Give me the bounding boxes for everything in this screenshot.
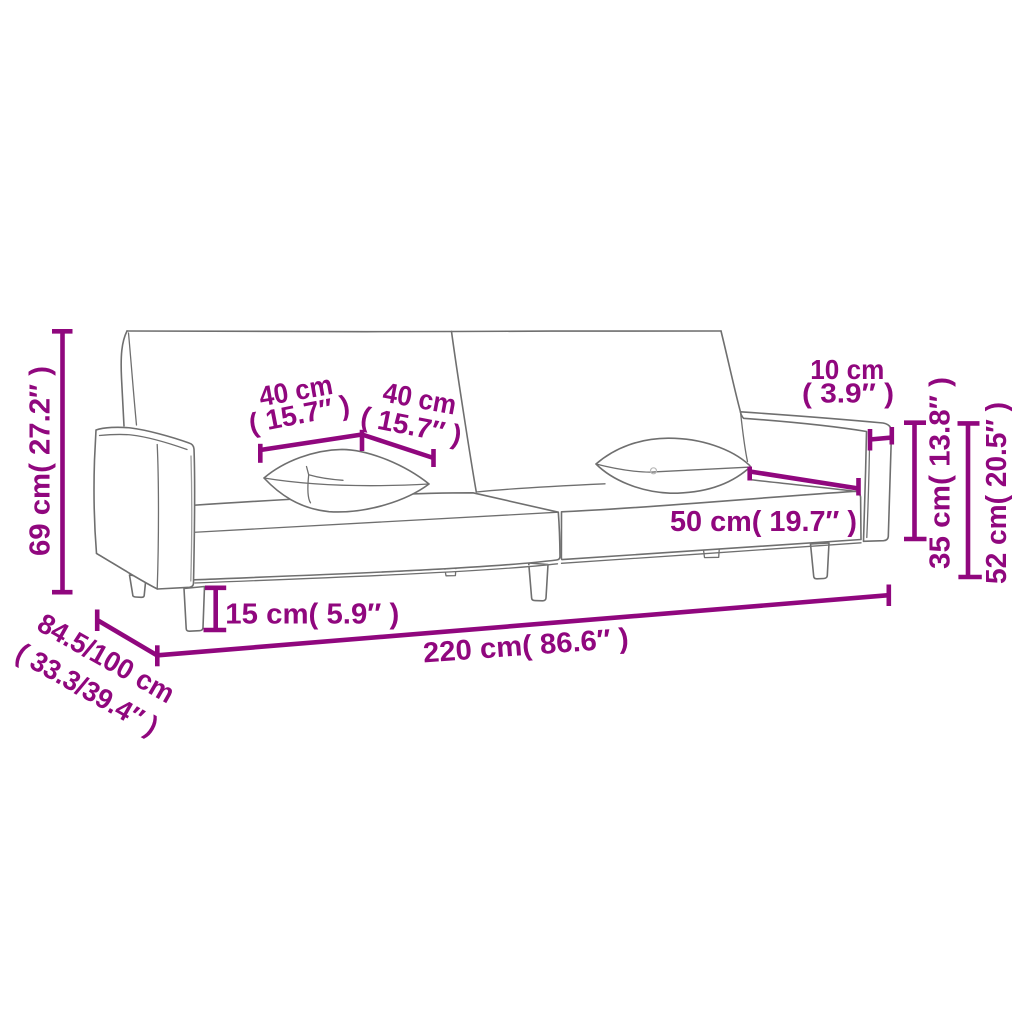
svg-text:69 cm( 27.2″ ): 69 cm( 27.2″ ) <box>25 366 57 556</box>
svg-text:( 3.9″ ): ( 3.9″ ) <box>802 378 894 409</box>
svg-text:15 cm( 5.9″ ): 15 cm( 5.9″ ) <box>225 599 399 631</box>
svg-text:35 cm( 13.8″ ): 35 cm( 13.8″ ) <box>925 377 957 569</box>
svg-text:52 cm( 20.5″ ): 52 cm( 20.5″ ) <box>981 402 1013 584</box>
svg-text:50 cm( 19.7″ ): 50 cm( 19.7″ ) <box>670 506 857 538</box>
